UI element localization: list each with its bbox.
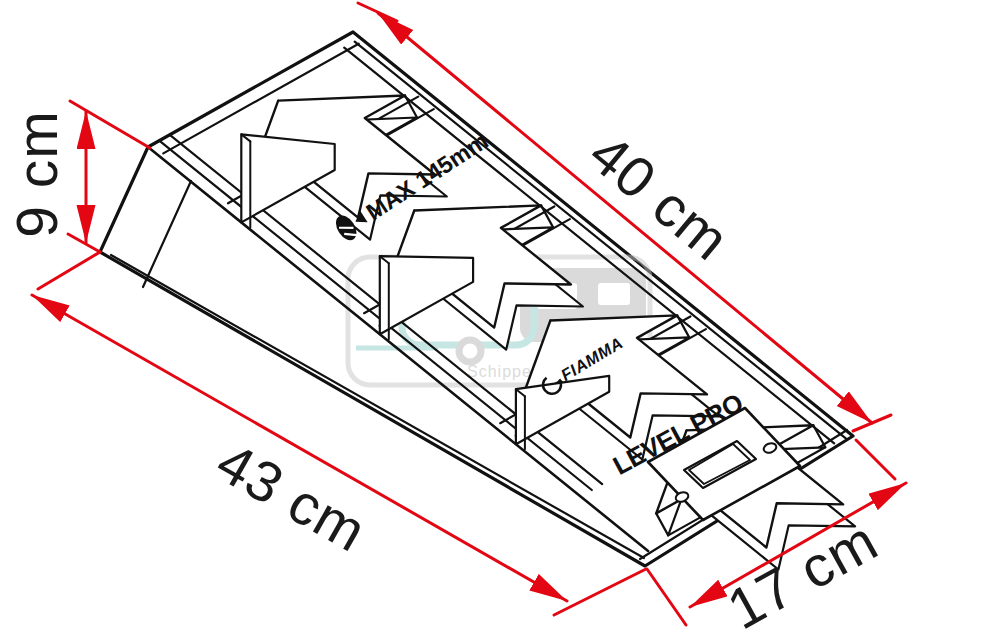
leveler-dimension-diagram: Schippercaravans MAX 145mm FIAMMA LEVEL … xyxy=(0,0,1000,639)
extension-line xyxy=(856,440,895,479)
extension-line xyxy=(70,101,150,148)
dimension-label: 9 cm xyxy=(5,110,69,238)
diagram-canvas: Schippercaravans MAX 145mm FIAMMA LEVEL … xyxy=(0,0,1000,639)
extension-line xyxy=(554,569,646,615)
extension-line xyxy=(68,234,100,252)
extension-line xyxy=(38,252,100,289)
watermark-caravan-window xyxy=(598,283,630,305)
extension-line xyxy=(647,569,686,625)
dimension-label: 43 cm xyxy=(206,429,377,564)
watermark-wheel-icon xyxy=(459,340,481,362)
